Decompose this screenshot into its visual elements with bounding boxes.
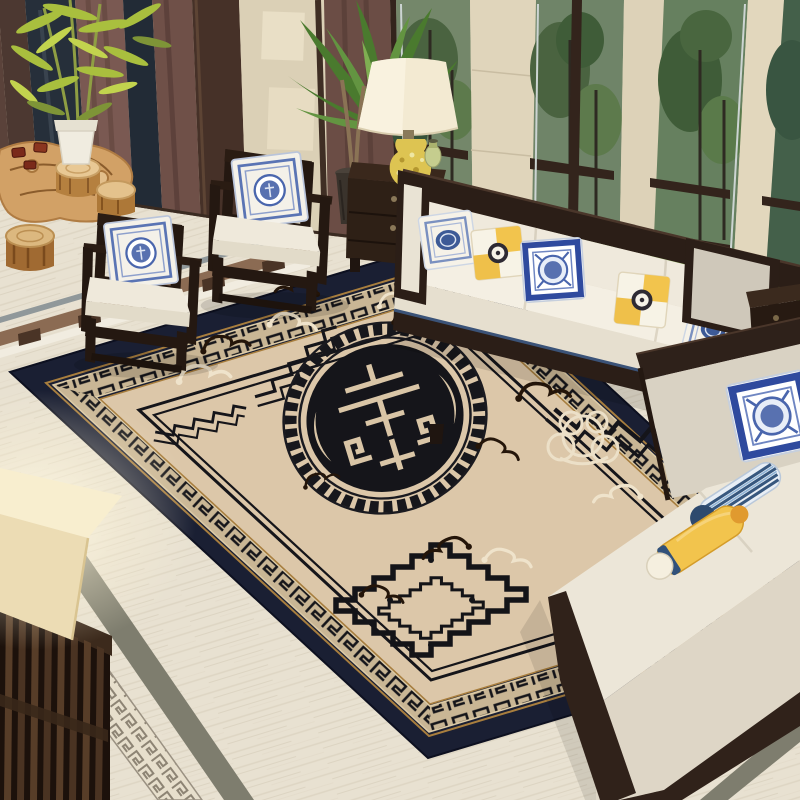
planter-rim (54, 120, 98, 131)
scene-canvas (0, 0, 800, 800)
living-room-scene (0, 0, 800, 800)
drawer-knob (391, 196, 397, 202)
log-stool (97, 181, 135, 216)
sofa-pillow-yellow (614, 272, 670, 328)
drawer-knob (773, 315, 779, 321)
planter-box (58, 131, 94, 164)
sofa-pillow-white-blue (418, 210, 478, 270)
drawer-knob (390, 225, 396, 231)
sofa-pillow-yellow (471, 226, 526, 281)
sofa-pillow-porcelain (521, 238, 586, 303)
log-stool (6, 225, 54, 271)
tea-cup (34, 143, 48, 153)
tea-cup (24, 161, 36, 169)
tea-cup (12, 147, 26, 157)
